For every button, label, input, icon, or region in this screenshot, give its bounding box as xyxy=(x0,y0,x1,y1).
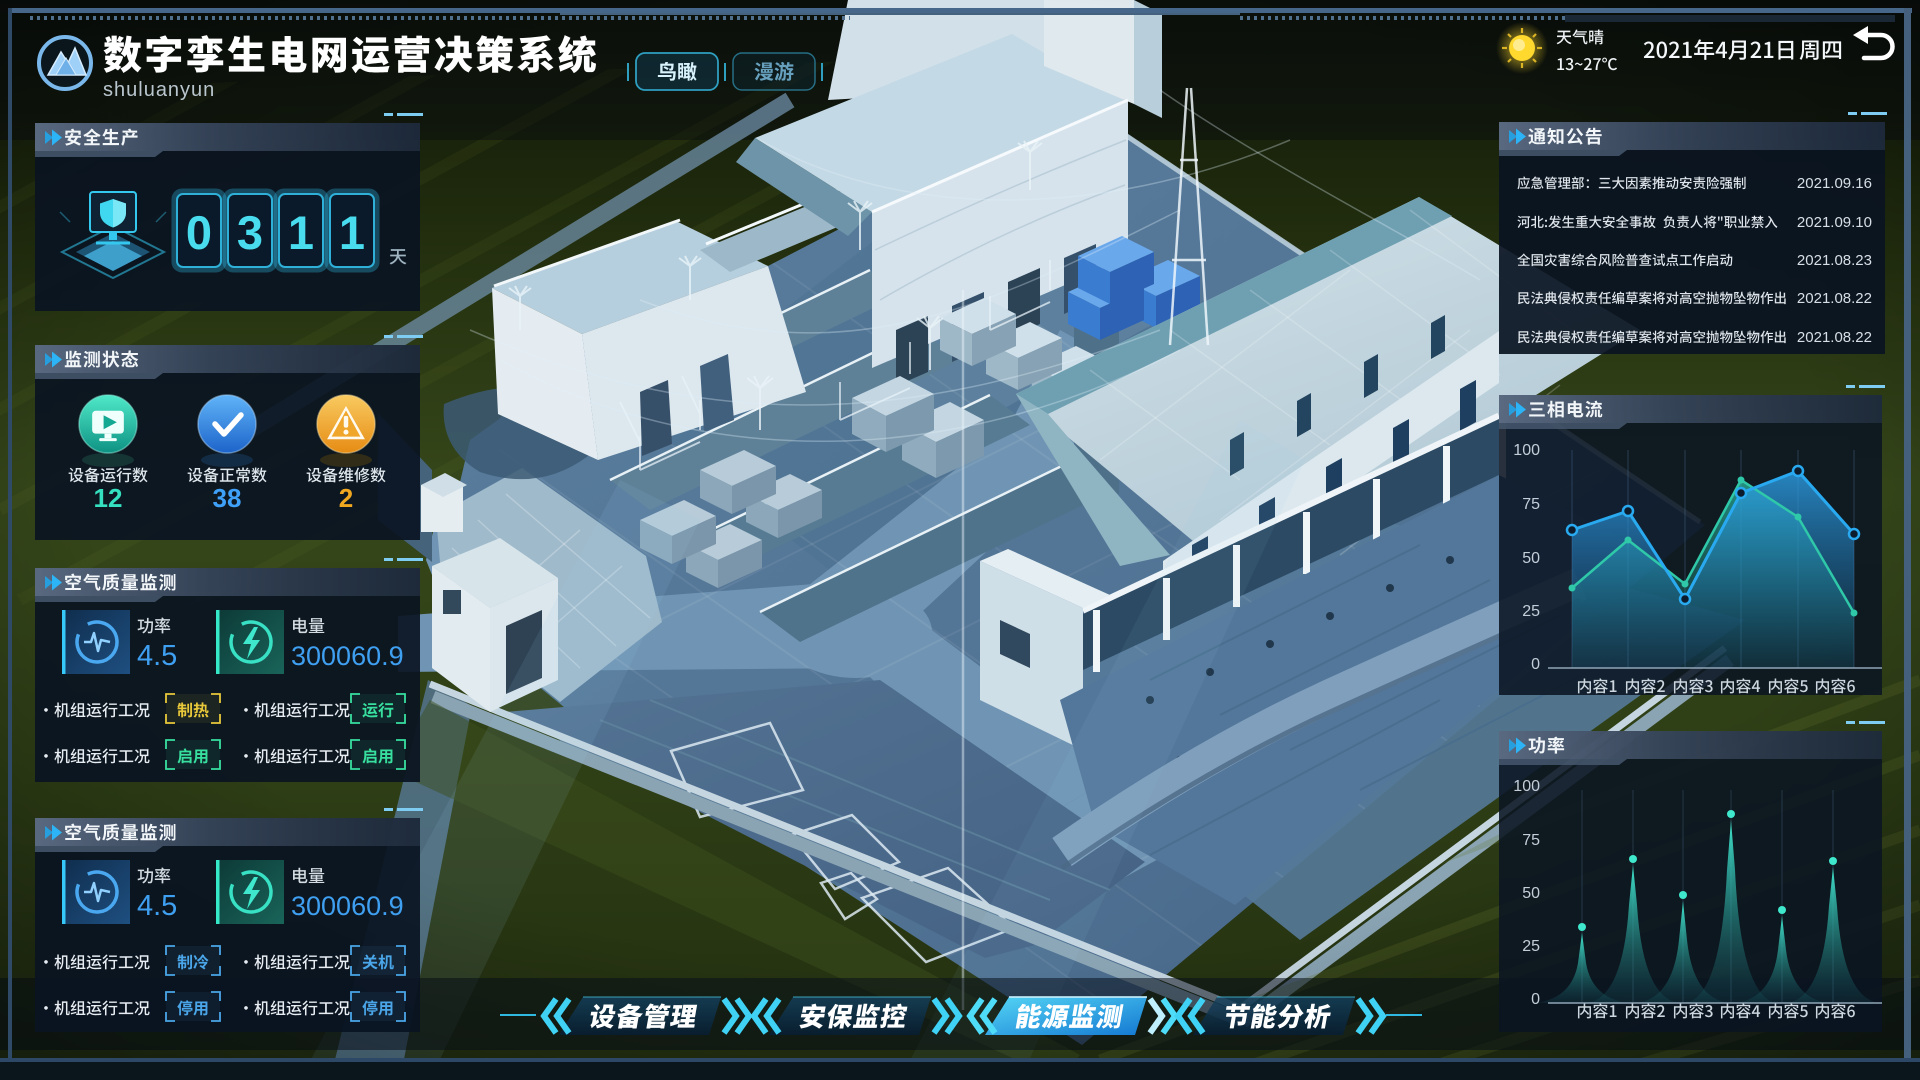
svg-text:25: 25 xyxy=(1522,938,1540,955)
svg-text:2021.09.10: 2021.09.10 xyxy=(1797,214,1872,231)
svg-text:1: 1 xyxy=(339,206,365,259)
svg-text:2021.08.23: 2021.08.23 xyxy=(1797,252,1872,269)
svg-text:50: 50 xyxy=(1522,550,1540,567)
svg-text:75: 75 xyxy=(1522,832,1540,849)
svg-text:3: 3 xyxy=(237,206,263,259)
svg-text:2021.08.22: 2021.08.22 xyxy=(1797,329,1872,346)
svg-text:300060.9: 300060.9 xyxy=(291,641,404,671)
svg-text:2: 2 xyxy=(339,483,353,513)
svg-text:1: 1 xyxy=(288,206,314,259)
svg-text:12: 12 xyxy=(94,483,123,513)
svg-text:0: 0 xyxy=(1531,991,1540,1008)
svg-text:100: 100 xyxy=(1513,442,1540,459)
svg-text:50: 50 xyxy=(1522,885,1540,902)
svg-text:100: 100 xyxy=(1513,778,1540,795)
svg-text:0: 0 xyxy=(186,206,212,259)
svg-text:2021.09.16: 2021.09.16 xyxy=(1797,175,1872,192)
svg-text:0: 0 xyxy=(1531,656,1540,673)
svg-text:4.5: 4.5 xyxy=(137,640,177,672)
svg-text:shuluanyun: shuluanyun xyxy=(103,79,215,101)
svg-text:4.5: 4.5 xyxy=(137,890,177,922)
svg-text:300060.9: 300060.9 xyxy=(291,891,404,921)
svg-text:25: 25 xyxy=(1522,603,1540,620)
svg-text:2021.08.22: 2021.08.22 xyxy=(1797,290,1872,307)
svg-text:38: 38 xyxy=(213,483,242,513)
svg-text:75: 75 xyxy=(1522,496,1540,513)
